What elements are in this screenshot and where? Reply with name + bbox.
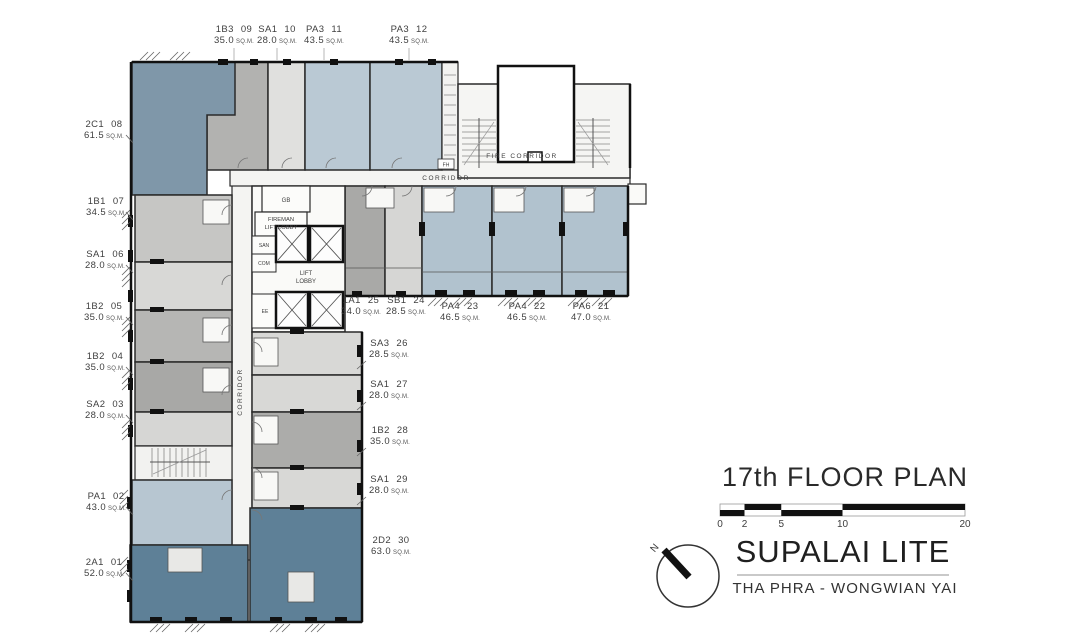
unit-area: 28.5SQ.M. bbox=[351, 350, 427, 362]
unit-label-04: 1B204 35.0SQ.M. bbox=[67, 352, 143, 374]
unit-area: 34.5SQ.M. bbox=[68, 208, 144, 220]
unit-label-12: PA312 43.5SQ.M. bbox=[371, 25, 447, 47]
unit-label-22: PA422 46.5SQ.M. bbox=[489, 302, 565, 324]
brand-divider bbox=[737, 574, 949, 576]
project-location: THA PHRA - WONGWIAN YAI bbox=[700, 580, 990, 597]
north-compass: N bbox=[649, 542, 719, 607]
unit-label-08: 2C108 61.5SQ.M. bbox=[66, 120, 142, 142]
com-label: COM bbox=[258, 261, 270, 267]
ee-label: EE bbox=[262, 309, 269, 315]
unit-11-shape bbox=[305, 62, 370, 170]
unit-area: 46.5SQ.M. bbox=[489, 313, 565, 325]
gb-label: GB bbox=[282, 198, 291, 204]
unit-area: 35.0SQ.M. bbox=[67, 363, 143, 375]
unit-area: 28.0SQ.M. bbox=[67, 261, 143, 273]
unit-area: 28.0SQ.M. bbox=[351, 391, 427, 403]
unit-label-06: SA106 28.0SQ.M. bbox=[67, 250, 143, 272]
scale-tick-10: 10 bbox=[837, 519, 849, 530]
unit-area: 63.0SQ.M. bbox=[353, 547, 429, 559]
unit-06-shape bbox=[135, 262, 232, 310]
scale-tick-2: 2 bbox=[742, 519, 748, 530]
fireman-lobby-label-1: FIREMAN bbox=[268, 217, 294, 223]
unit-label-26: SA326 28.5SQ.M. bbox=[351, 339, 427, 361]
unit-label-05: 1B205 35.0SQ.M. bbox=[66, 302, 142, 324]
open-void bbox=[498, 66, 574, 162]
floor-plan-sheet: FH bbox=[0, 0, 1080, 640]
unit-area: 43.0SQ.M. bbox=[68, 503, 144, 515]
corridor-label-vertical: CORRIDOR bbox=[237, 368, 244, 415]
unit-10-shape bbox=[268, 62, 305, 170]
unit-label-11: PA311 43.5SQ.M. bbox=[286, 25, 362, 47]
corridor-stub bbox=[628, 184, 646, 204]
unit-area: 43.5SQ.M. bbox=[286, 36, 362, 48]
unit-label-29: SA129 28.0SQ.M. bbox=[351, 475, 427, 497]
lift-lobby-label-1: LIFT bbox=[300, 271, 313, 277]
lift-lobby-label-2: LOBBY bbox=[296, 279, 316, 285]
unit-area: 35.0SQ.M. bbox=[66, 313, 142, 325]
fire-corridor-block bbox=[458, 66, 630, 178]
unit-area: 43.5SQ.M. bbox=[371, 36, 447, 48]
scale-bar: 0 2 5 10 20 bbox=[717, 504, 971, 530]
unit-area: 34.0SQ.M. bbox=[323, 307, 399, 319]
san-label: SAN bbox=[259, 243, 270, 249]
project-name: SUPALAI LITE bbox=[713, 534, 973, 570]
fh-label: FH bbox=[443, 163, 450, 169]
corridor-label-horizontal: CORRIDOR bbox=[422, 175, 469, 182]
unit-12-shape bbox=[370, 62, 442, 170]
unit-label-28: 1B228 35.0SQ.M. bbox=[352, 426, 428, 448]
stair-left-wing bbox=[135, 446, 232, 480]
unit-30-shape bbox=[250, 508, 362, 622]
scale-tick-5: 5 bbox=[778, 519, 784, 530]
floor-plan-title: 17th FLOOR PLAN bbox=[700, 462, 990, 493]
unit-label-30: 2D230 63.0SQ.M. bbox=[353, 536, 429, 558]
unit-area: 52.0SQ.M. bbox=[66, 569, 142, 581]
unit-label-27: SA127 28.0SQ.M. bbox=[351, 380, 427, 402]
unit-27-shape bbox=[252, 375, 362, 412]
unit-area: 28.0SQ.M. bbox=[351, 486, 427, 498]
unit-label-07: 1B107 34.5SQ.M. bbox=[68, 197, 144, 219]
fireman-lobby-label-2: LIFT LOBBY bbox=[265, 225, 298, 231]
fire-hose-box: FH bbox=[438, 159, 454, 169]
unit-label-25: 1A125 34.0SQ.M. bbox=[323, 296, 399, 318]
stair-top-strip bbox=[442, 62, 458, 170]
unit-area: 35.0SQ.M. bbox=[352, 437, 428, 449]
unit-label-02: PA102 43.0SQ.M. bbox=[68, 492, 144, 514]
unit-label-03: SA203 28.0SQ.M. bbox=[67, 400, 143, 422]
unit-label-01: 2A101 52.0SQ.M. bbox=[66, 558, 142, 580]
unit-03-shape bbox=[135, 412, 232, 446]
fire-corridor-label: FIRE CORRIDOR bbox=[486, 153, 558, 160]
scale-tick-20: 20 bbox=[959, 519, 971, 530]
unit-02-shape bbox=[132, 480, 232, 545]
unit-area: 28.0SQ.M. bbox=[67, 411, 143, 423]
unit-area: 61.5SQ.M. bbox=[66, 131, 142, 143]
north-label: N bbox=[649, 542, 662, 555]
scale-tick-0: 0 bbox=[717, 519, 723, 530]
